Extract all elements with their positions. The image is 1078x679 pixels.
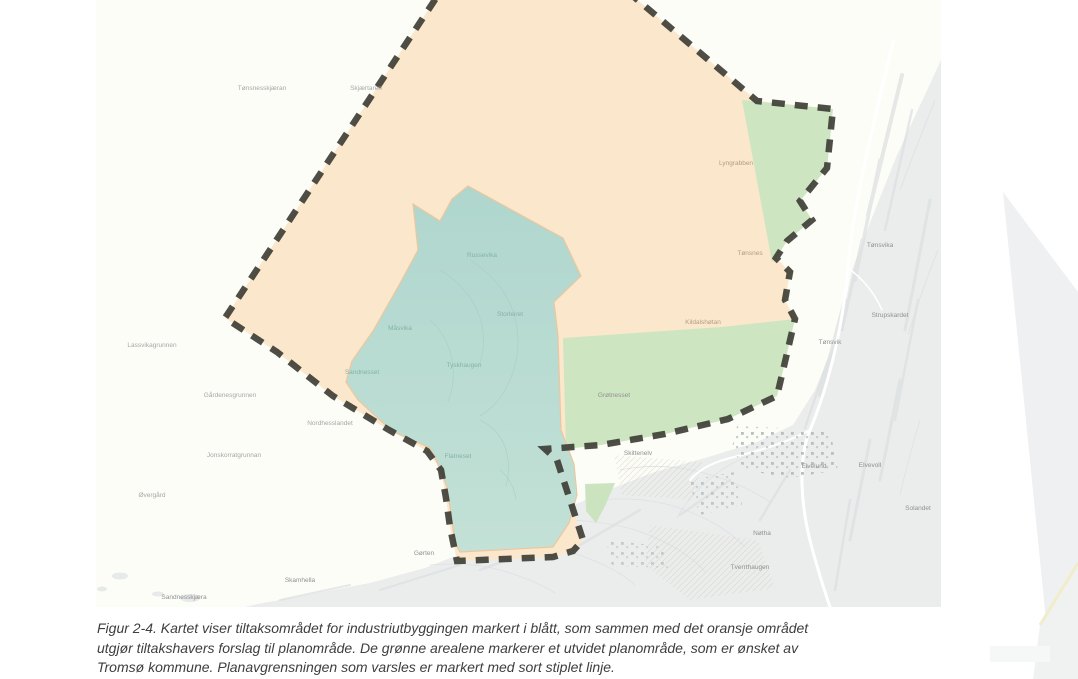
map-place-label: Nordhesslandet xyxy=(307,420,353,427)
map-place-label: Skamhella xyxy=(285,577,316,584)
watermark-yellow-line xyxy=(1040,563,1078,625)
caption-line-1: Figur 2-4. Kartet viser tiltaksområdet f… xyxy=(97,619,997,639)
watermark-strip xyxy=(990,646,1050,662)
map-place-label: Russevika xyxy=(467,252,497,259)
map-place-label: Nøtha xyxy=(753,530,771,537)
map-place-label: Jonskorratgrunnan xyxy=(207,452,262,459)
map-place-label: Lassvikagrunnen xyxy=(127,342,177,349)
map-place-label: Sandnesskjæra xyxy=(161,594,207,601)
map-place-label: Gørten xyxy=(414,550,435,557)
map-place-label: Storleiret xyxy=(497,311,523,318)
map-place-label: Elvevoll xyxy=(859,462,882,469)
map-place-label: Flatneset xyxy=(445,453,472,460)
map-place-label: Tyskhaugen xyxy=(446,362,481,369)
map-place-label: Solandet xyxy=(905,505,931,512)
watermark-band xyxy=(1003,192,1078,620)
map-place-label: Kildalshøtan xyxy=(685,319,721,326)
caption-line-2: utgjør tiltakshavers forslag til planomr… xyxy=(97,639,997,659)
map-place-label: Skjærtaren xyxy=(350,85,382,92)
map-place-label: Strupskardet xyxy=(872,312,909,319)
map-place-label: Tønsvika xyxy=(867,242,894,249)
map-place-label: Tønsnes xyxy=(737,250,763,257)
page-watermark xyxy=(941,0,1078,679)
map-place-label: Gårdenesgrunnen xyxy=(204,391,257,399)
map-place-label: Øvergård xyxy=(138,491,165,499)
map-place-label: Tverrthaugen xyxy=(731,564,770,571)
map-place-label: Grøtnesset xyxy=(598,392,630,399)
map-place-label: Tønsnesskjæran xyxy=(238,85,287,92)
map-place-label: Måsvika xyxy=(388,324,412,332)
map-place-label: Skittenelv xyxy=(624,450,653,457)
planomrade-map: TønsnesskjæranSkjærtarenLyngrabbenTønsne… xyxy=(96,0,941,607)
map-place-label: Elvelund xyxy=(802,463,827,470)
map-place-label: Lyngrabben xyxy=(719,160,753,167)
figure-caption: Figur 2-4. Kartet viser tiltaksområdet f… xyxy=(97,619,997,678)
map-place-label: Sandnesset xyxy=(345,369,380,376)
watermark-corner xyxy=(1033,563,1078,679)
map-place-label: Tønsvik xyxy=(819,339,843,346)
figure-map: TønsnesskjæranSkjærtarenLyngrabbenTønsne… xyxy=(96,0,941,607)
document-page: { "figure_caption": { "lines": [ "Figur … xyxy=(0,0,1078,679)
caption-line-3: Tromsø kommune. Planavgrensningen som va… xyxy=(97,658,997,678)
